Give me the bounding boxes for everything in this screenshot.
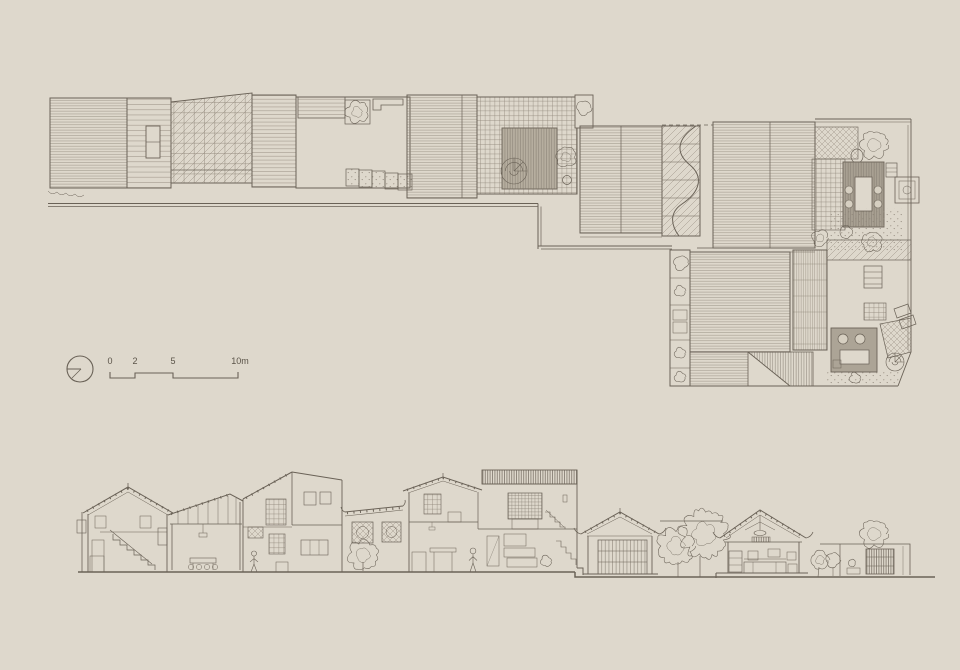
roof-panel-a1: [50, 98, 127, 188]
chair-symbol: [845, 186, 853, 194]
chair-symbol: [855, 334, 865, 344]
drawing-canvas: 02510m: [0, 0, 960, 670]
dining-table: [855, 177, 872, 211]
wall-medallion: [382, 522, 401, 542]
skylight-glazing: [171, 93, 252, 183]
perforated-screen: [508, 493, 542, 519]
slat-screen: [866, 549, 894, 574]
coffee-table: [840, 350, 869, 364]
scale-label-10m: 10m: [231, 356, 249, 366]
roof-panel-d: [713, 122, 815, 248]
paving-stone: [385, 173, 398, 189]
scale-label-5: 5: [170, 356, 175, 366]
roof-panel-b: [407, 95, 477, 198]
slat-parapet: [482, 470, 577, 484]
scale-label-2: 2: [132, 356, 137, 366]
name-plaque: [752, 537, 770, 542]
wall-medallion: [352, 522, 373, 543]
relief-panel: [248, 527, 263, 538]
scale-label-0: 0: [107, 356, 112, 366]
roof-panel-a3: [252, 95, 296, 187]
lattice-panel: [266, 499, 286, 525]
chair-symbol: [838, 334, 848, 344]
diamond-paving: [815, 127, 858, 159]
paving-stone: [372, 171, 385, 188]
lattice-panel: [269, 534, 285, 554]
architectural-drawing-sheet: 02510m: [0, 0, 960, 670]
chair-symbol: [874, 200, 882, 208]
chair-symbol: [874, 186, 882, 194]
stipple-bed: [827, 372, 899, 384]
lattice-window: [424, 494, 441, 514]
roof-panel-e: [690, 252, 790, 352]
slatted-door: [598, 540, 647, 574]
planting-bed: [827, 240, 911, 260]
grid-bed: [864, 303, 886, 320]
brick-paving: [793, 250, 827, 350]
paving-stone: [359, 170, 372, 187]
paving-stone: [346, 169, 359, 186]
roof-strip: [298, 97, 345, 118]
chair-symbol: [845, 200, 853, 208]
roof-panel-e-low: [690, 352, 748, 386]
